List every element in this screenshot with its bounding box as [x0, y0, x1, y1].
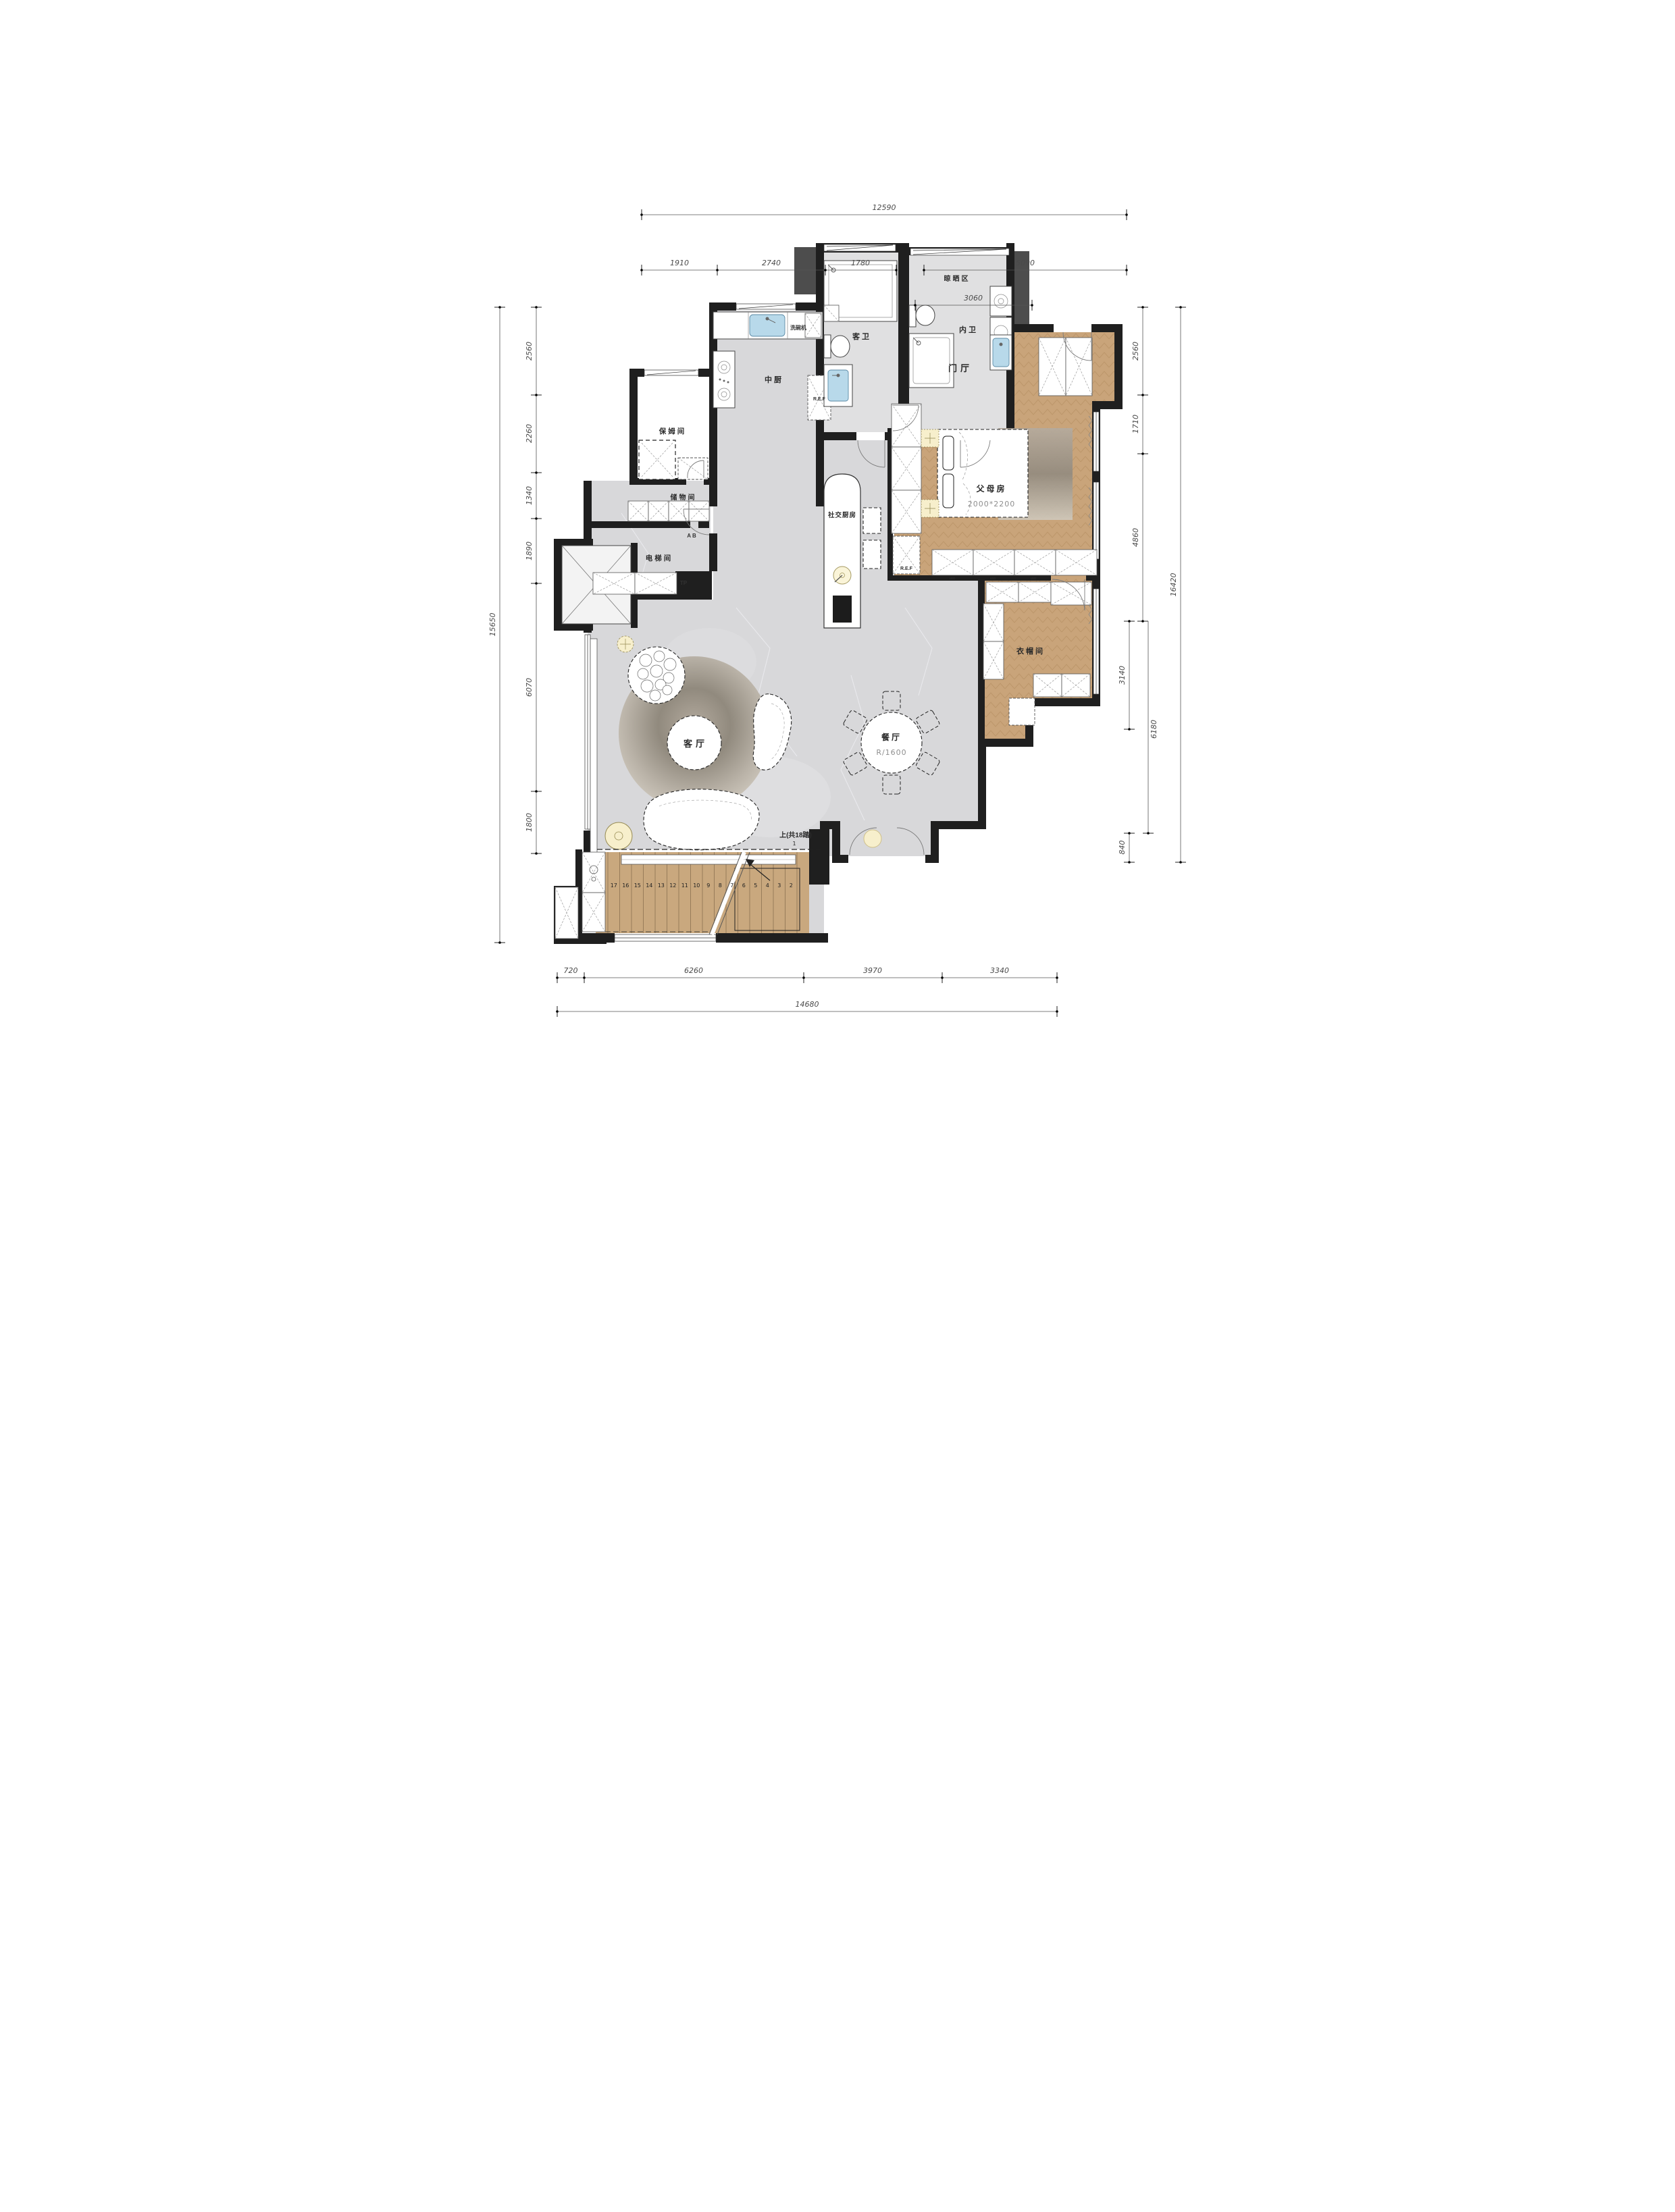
svg-text:720: 720 — [564, 966, 578, 975]
tv-board — [590, 639, 597, 864]
label-tp: TP — [680, 580, 688, 586]
label-kitchen: 中厨 — [765, 375, 783, 384]
svg-text:1780: 1780 — [851, 259, 870, 267]
svg-text:1800: 1800 — [525, 813, 534, 832]
label-dining-room: 餐厅 — [881, 732, 902, 742]
svg-text:LED: LED — [1031, 577, 1037, 580]
svg-text:11: 11 — [681, 883, 688, 889]
svg-text:2560: 2560 — [1131, 342, 1140, 361]
svg-text:6: 6 — [742, 883, 746, 889]
label-fridge-bedroom: R.E.F — [900, 567, 913, 571]
entry-light — [864, 830, 881, 847]
svg-text:8: 8 — [719, 883, 722, 889]
label-ab: A B — [687, 533, 696, 539]
svg-text:10: 10 — [693, 883, 700, 889]
floor-plan-sheet: 客卫 内卫 晾晒区 中厨 洗碗机 R.E.F 保姆间 储物间 A B 电梯间 T… — [419, 0, 1256, 1106]
svg-text:6260: 6260 — [684, 966, 703, 975]
label-drying-area: 晾晒区 — [944, 274, 971, 283]
svg-text:14: 14 — [646, 883, 652, 889]
svg-text:LED: LED — [950, 577, 956, 580]
label-elevator-room: 电梯间 — [646, 554, 673, 562]
sofa-bottom — [644, 789, 759, 850]
dining-table — [861, 712, 922, 773]
svg-text:4860: 4860 — [1131, 528, 1140, 547]
dim-bottom-overall: 14680 — [796, 1000, 819, 1009]
svg-text:3140: 3140 — [1118, 666, 1127, 685]
svg-text:LED: LED — [990, 577, 997, 580]
dim-top-sub: 3060 — [964, 294, 983, 302]
svg-text:1890: 1890 — [525, 542, 534, 560]
label-parents-bed-size: 2000*2200 — [968, 500, 1016, 508]
label-first-step: 1 — [792, 841, 796, 847]
island-stool — [863, 508, 881, 533]
svg-text:12: 12 — [669, 883, 676, 889]
svg-text:1340: 1340 — [525, 486, 534, 505]
svg-text:1710: 1710 — [1131, 415, 1140, 433]
svg-text:17: 17 — [611, 883, 617, 889]
island-cooktop — [833, 596, 852, 623]
svg-text:3: 3 — [777, 883, 781, 889]
dim-right-overall: 16420 — [1169, 573, 1178, 597]
floor-lamp — [605, 822, 632, 849]
svg-text:2: 2 — [790, 883, 793, 889]
label-nanny-room: 保姆间 — [659, 427, 687, 436]
svg-text:2740: 2740 — [762, 259, 781, 267]
dim-left-overall: 15650 — [488, 613, 497, 637]
svg-text:5090: 5090 — [1016, 259, 1035, 267]
label-guest-bath: 客卫 — [852, 332, 871, 341]
svg-text:15: 15 — [634, 883, 641, 889]
svg-text:1910: 1910 — [670, 259, 689, 267]
svg-text:5: 5 — [754, 883, 757, 889]
svg-text:2260: 2260 — [525, 424, 534, 443]
dim-top-overall: 12590 — [873, 203, 896, 212]
label-dining-radius: R/1600 — [876, 748, 906, 757]
svg-text:3970: 3970 — [863, 966, 882, 975]
floor-plan-drawing: 客卫 内卫 晾晒区 中厨 洗碗机 R.E.F 保姆间 储物间 A B 电梯间 T… — [419, 0, 1256, 1106]
stove — [713, 351, 735, 408]
svg-text:9: 9 — [706, 883, 710, 889]
label-parents-room: 父母房 — [975, 483, 1006, 494]
label-foyer: 门厅 — [948, 363, 973, 373]
svg-text:6180: 6180 — [1150, 720, 1158, 739]
label-living-room: 客厅 — [684, 739, 708, 749]
label-social-kitchen: 社交厨房 — [827, 511, 856, 519]
svg-text:840: 840 — [1118, 841, 1127, 855]
svg-text:4: 4 — [766, 883, 769, 889]
svg-text:7: 7 — [730, 883, 733, 889]
staircase — [596, 849, 823, 934]
label-fridge-kitchen: R.E.F — [813, 397, 826, 402]
label-closet-room: 衣帽间 — [1016, 646, 1045, 656]
label-dishwasher: 洗碗机 — [790, 324, 806, 331]
label-stairs-note: 上(共18踏) — [779, 831, 812, 839]
island-stool — [863, 540, 881, 569]
svg-text:6070: 6070 — [525, 678, 534, 697]
svg-text:16: 16 — [622, 883, 629, 889]
label-storage-room: 储物间 — [670, 493, 697, 502]
svg-text:13: 13 — [658, 883, 665, 889]
svg-text:2560: 2560 — [525, 342, 534, 361]
svg-text:3340: 3340 — [990, 966, 1009, 975]
label-master-bath: 内卫 — [959, 325, 978, 334]
